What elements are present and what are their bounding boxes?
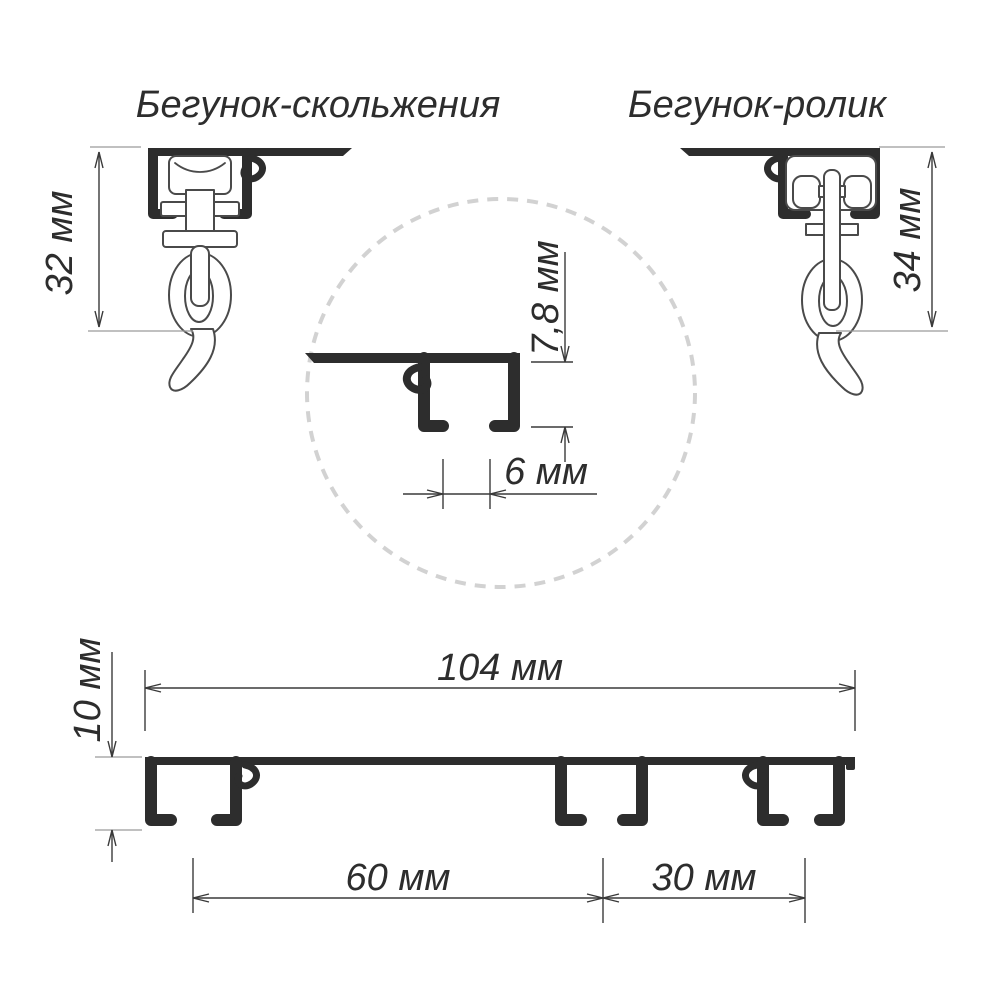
roller-runner-height-label: 34 мм xyxy=(887,188,929,293)
runner-plate xyxy=(163,231,237,247)
profile-wall-5 xyxy=(763,762,783,820)
profile-width-dimension: 104 мм xyxy=(145,647,855,731)
rail-slot-label: 6 мм xyxy=(504,451,588,493)
roller-runner-figure: 34 мм xyxy=(680,147,948,395)
groove-spacing-narrow-label: 30 мм xyxy=(652,857,757,899)
profile-height-dimension: 10 мм xyxy=(67,638,142,862)
groove-spacing-wide-dimension: 60 мм xyxy=(193,857,603,923)
groove-spacing-wide-label: 60 мм xyxy=(346,857,451,899)
runner-tab-left xyxy=(161,202,189,216)
profile-wall-2 xyxy=(217,762,236,820)
profile-wall-6 xyxy=(820,762,839,820)
rail-flange xyxy=(305,353,520,363)
rail-profile-detail xyxy=(305,353,520,426)
runner-stem xyxy=(191,246,209,306)
runner-stem xyxy=(824,170,840,310)
rail-slot-dimension: 6 мм xyxy=(403,451,597,509)
runner-body xyxy=(169,156,231,194)
rail-depth-label: 7,8 мм xyxy=(525,240,567,355)
profile-right-lip xyxy=(846,757,855,770)
slide-runner-figure: 32 мм xyxy=(39,147,352,391)
curtain-rail-technical-drawing: Бегунок-скольжения Бегунок-ролик 7,8 мм … xyxy=(0,0,1000,1000)
right-figure-title: Бегунок-ролик xyxy=(628,84,888,126)
rail-left-wall xyxy=(424,358,443,426)
runner-tab-right xyxy=(211,202,239,216)
hook-tail xyxy=(169,329,215,391)
slide-runner-height-label: 32 мм xyxy=(39,191,81,296)
profile-width-label: 104 мм xyxy=(437,647,563,689)
rail-depth-dimension: 7,8 мм xyxy=(525,240,573,462)
slide-runner xyxy=(161,156,239,391)
profile-height-label: 10 мм xyxy=(67,638,109,743)
drawing-canvas: Бегунок-скольжения Бегунок-ролик 7,8 мм … xyxy=(0,0,1000,1000)
hook-tail xyxy=(817,333,863,395)
roller-right xyxy=(844,176,871,208)
profile-wall-3 xyxy=(561,762,581,820)
profile-wall-4 xyxy=(623,762,642,820)
roller-left xyxy=(793,176,820,208)
profile-wall-1 xyxy=(151,762,171,820)
roller-runner xyxy=(786,156,876,395)
rail-profile-bottom-figure: 10 мм 104 мм 60 мм 30 мм xyxy=(67,638,855,923)
detail-circle-outline xyxy=(307,199,695,587)
left-figure-title: Бегунок-скольжения xyxy=(136,84,501,126)
runner-neck xyxy=(186,190,214,234)
rail-cross-section-detail: 7,8 мм 6 мм xyxy=(305,199,695,587)
rail-right-wall xyxy=(495,358,514,426)
groove-spacing-narrow-dimension: 30 мм xyxy=(603,857,805,923)
